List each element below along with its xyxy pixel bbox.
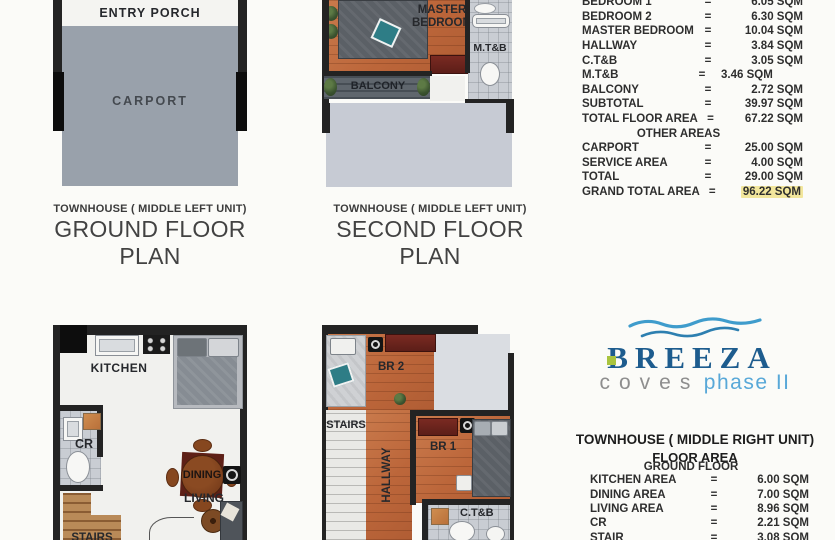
pillow-icon xyxy=(491,421,508,436)
wall xyxy=(53,325,60,540)
area-row: SERVICE AREA = 4.00 SQM xyxy=(545,156,835,171)
area-row: HALLWAY = 3.84 SQM xyxy=(545,39,835,54)
pillow-icon xyxy=(330,338,356,355)
floor-lamp-arc xyxy=(149,517,194,540)
area-value: 3.05 SQM xyxy=(721,55,803,67)
equals-sign: = xyxy=(695,11,721,23)
room-label-ctb: C.T&B xyxy=(460,507,494,519)
wall xyxy=(422,499,428,540)
area-row: DINING AREA = 7.00 SQM xyxy=(545,487,835,501)
pillow-icon xyxy=(474,421,491,436)
toilet-icon xyxy=(449,521,475,540)
wave-icon xyxy=(628,316,762,342)
tub-icon xyxy=(472,14,510,28)
area-row: KITCHEN AREA = 6.00 SQM xyxy=(545,473,835,487)
caption-unit-label: TOWNHOUSE ( MIDDLE LEFT UNIT) xyxy=(30,203,270,215)
cabinet-icon xyxy=(430,55,470,74)
area-row: SUBTOTAL = 39.97 SQM xyxy=(545,97,835,112)
area-value: 67.22 SQM xyxy=(723,113,803,125)
area-row: STAIR = 3.08 SQM xyxy=(545,531,835,540)
area-row: BALCONY = 2.72 SQM xyxy=(545,83,835,98)
ceiling-fan-icon xyxy=(368,337,383,352)
area-value: 29.00 SQM xyxy=(721,171,803,183)
room-label-stairs: STAIRS xyxy=(63,532,121,540)
area-label: TOTAL FLOOR AREA xyxy=(582,113,698,125)
caption-unit-label: TOWNHOUSE ( MIDDLE LEFT UNIT) xyxy=(310,203,550,215)
area-row: BEDROOM 1 = 6.05 SQM xyxy=(545,0,835,10)
equals-sign: = xyxy=(701,517,727,529)
area-value: 10.04 SQM xyxy=(721,25,803,37)
area-value: 8.96 SQM xyxy=(727,503,809,515)
area-label: STAIR xyxy=(590,532,701,540)
area-label: SERVICE AREA xyxy=(582,157,695,169)
room-label-br2: BR 2 xyxy=(378,361,404,373)
wall xyxy=(53,72,64,131)
room-label-balcony: BALCONY xyxy=(332,80,424,92)
section-title: OTHER AREAS xyxy=(637,128,720,140)
area-value: 7.00 SQM xyxy=(727,489,809,501)
equals-sign: = xyxy=(695,40,721,52)
sink-icon xyxy=(486,526,505,540)
equals-sign: = xyxy=(701,503,727,515)
area-label: BALCONY xyxy=(582,84,695,96)
wall xyxy=(410,410,416,505)
area-label: C.T&B xyxy=(582,55,695,67)
cabinet-icon xyxy=(418,418,458,436)
area-value: 2.21 SQM xyxy=(727,517,809,529)
equals-sign: = xyxy=(695,171,721,183)
wall xyxy=(236,72,247,131)
area-value: 6.05 SQM xyxy=(721,0,803,8)
wall xyxy=(322,103,330,133)
wall xyxy=(506,103,514,133)
area-label: KITCHEN AREA xyxy=(590,474,701,486)
right-unit-title: TOWNHOUSE ( MIDDLE RIGHT UNIT) xyxy=(545,432,835,447)
brand-tagline: coves phase II xyxy=(565,371,825,395)
pillow-icon xyxy=(177,338,207,357)
area-value: 3.46 SQM xyxy=(715,69,803,81)
area-label: CARPORT xyxy=(582,142,695,154)
kitchen-sink-icon xyxy=(95,335,139,356)
equals-sign: = xyxy=(695,142,721,154)
area-row: LIVING AREA = 8.96 SQM xyxy=(545,502,835,516)
second-floor-plan-right-drawing: BR 2 STAIRS HALLWAY BR 1 C.T&B xyxy=(322,325,514,540)
stove-icon xyxy=(143,335,170,354)
area-label: MASTER BEDROOM xyxy=(582,25,695,37)
pillow-icon xyxy=(208,338,239,357)
area-value: 3.84 SQM xyxy=(721,40,803,52)
area-value: 4.00 SQM xyxy=(721,157,803,169)
shower-icon xyxy=(431,508,449,525)
stairs-landing xyxy=(91,493,121,515)
grand-total-row: GRAND TOTAL AREA = 96.22 SQM xyxy=(545,185,835,200)
area-value: 39.97 SQM xyxy=(721,98,803,110)
toilet-icon xyxy=(66,451,90,483)
chair-icon xyxy=(193,439,212,452)
room-label-stairs: STAIRS xyxy=(323,419,369,431)
floorplan-document: ENTRY PORCH CARPORT TOWNHOUSE ( MIDDLE L… xyxy=(0,0,835,540)
cabinet-icon xyxy=(385,334,436,352)
area-row: C.T&B = 3.05 SQM xyxy=(545,53,835,68)
caption-ground-floor-plan: TOWNHOUSE ( MIDDLE LEFT UNIT) GROUND FLO… xyxy=(30,203,270,270)
brand-tagline-phase: phase II xyxy=(704,371,791,394)
area-value: 6.30 SQM xyxy=(721,11,803,23)
area-row: BEDROOM 2 = 6.30 SQM xyxy=(545,10,835,25)
area-value: 3.08 SQM xyxy=(727,532,809,540)
wall xyxy=(60,405,101,411)
side-table-icon xyxy=(456,475,472,491)
ceiling-fan-icon xyxy=(223,466,241,484)
wall xyxy=(410,410,514,416)
equals-sign: = xyxy=(701,489,727,501)
ground-floor-area-table: KITCHEN AREA = 6.00 SQM DINING AREA = 7.… xyxy=(545,473,835,540)
second-floor-area-table: BEDROOM 1 = 6.05 SQM BEDROOM 2 = 6.30 SQ… xyxy=(545,0,835,199)
logo-green-accent xyxy=(607,356,616,365)
equals-sign: = xyxy=(701,474,727,486)
area-label: BEDROOM 2 xyxy=(582,11,695,23)
plant-icon xyxy=(394,393,406,405)
equals-sign: = xyxy=(700,186,725,198)
area-value: 2.72 SQM xyxy=(721,84,803,96)
room-label-carport: CARPORT xyxy=(53,94,247,108)
floor-notch xyxy=(430,76,465,101)
area-label: CR xyxy=(590,517,701,529)
wall xyxy=(465,0,470,73)
ground-floor-plan-right-drawing: KITCHEN CR DINING LIVING STAIRS xyxy=(53,325,247,540)
room-label-cr: CR xyxy=(75,437,93,451)
toilet-icon xyxy=(480,62,500,86)
area-row: TOTAL FLOOR AREA = 67.22 SQM xyxy=(545,112,835,127)
room-label-kitchen: KITCHEN xyxy=(81,361,157,375)
area-value: 6.00 SQM xyxy=(727,474,809,486)
second-floor-plan-left-drawing: MASTER BEDROOM M.T&B BALCONY xyxy=(322,0,514,189)
equals-sign: = xyxy=(695,25,721,37)
area-label: DINING AREA xyxy=(590,489,701,501)
wall xyxy=(322,325,478,334)
equals-sign: = xyxy=(689,69,715,81)
area-value: 25.00 SQM xyxy=(721,142,803,154)
area-row: M.T&B = 3.46 SQM xyxy=(545,68,835,83)
wall xyxy=(422,499,514,505)
room-label-br1: BR 1 xyxy=(430,441,456,453)
grand-total-value: 96.22 SQM xyxy=(741,186,803,198)
equals-sign: = xyxy=(695,0,721,8)
mattress-icon xyxy=(177,357,237,405)
area-label: HALLWAY xyxy=(582,40,695,52)
open-roof-area xyxy=(434,334,510,410)
area-label: SUBTOTAL xyxy=(582,98,695,110)
caption-second-floor-plan: TOWNHOUSE ( MIDDLE LEFT UNIT) SECOND FLO… xyxy=(310,203,550,270)
area-row: CARPORT = 25.00 SQM xyxy=(545,141,835,156)
wall xyxy=(60,485,103,491)
ground-floor-plan-left-drawing: ENTRY PORCH CARPORT xyxy=(53,0,247,187)
room-label-entry-porch: ENTRY PORCH xyxy=(53,6,247,20)
room-label-hallway: HALLWAY xyxy=(381,430,395,520)
equals-sign: = xyxy=(698,113,723,125)
equals-sign: = xyxy=(695,98,721,110)
roof-area xyxy=(326,103,512,187)
area-label: TOTAL xyxy=(582,171,695,183)
caption-plan-title: GROUND FLOOR PLAN xyxy=(30,216,270,270)
room-label-mtb: M.T&B xyxy=(468,42,512,54)
equals-sign: = xyxy=(695,84,721,96)
equals-sign: = xyxy=(701,532,727,540)
bath-fixture-icon xyxy=(474,3,496,14)
area-label: LIVING AREA xyxy=(590,503,701,515)
caption-plan-title: SECOND FLOOR PLAN xyxy=(310,216,550,270)
ground-floor-section-header: GROUND FLOOR xyxy=(545,461,835,473)
area-row: CR = 2.21 SQM xyxy=(545,516,835,530)
shower-icon xyxy=(83,413,101,430)
other-areas-header: OTHER AREAS xyxy=(545,126,835,141)
area-label: M.T&B xyxy=(582,69,689,81)
brand-tagline-coves: coves xyxy=(599,371,699,394)
area-row: TOTAL = 29.00 SQM xyxy=(545,170,835,185)
area-label: GRAND TOTAL AREA xyxy=(582,186,700,198)
area-row: MASTER BEDROOM = 10.04 SQM xyxy=(545,24,835,39)
area-label: BEDROOM 1 xyxy=(582,0,695,8)
equals-sign: = xyxy=(695,55,721,67)
equals-sign: = xyxy=(695,157,721,169)
